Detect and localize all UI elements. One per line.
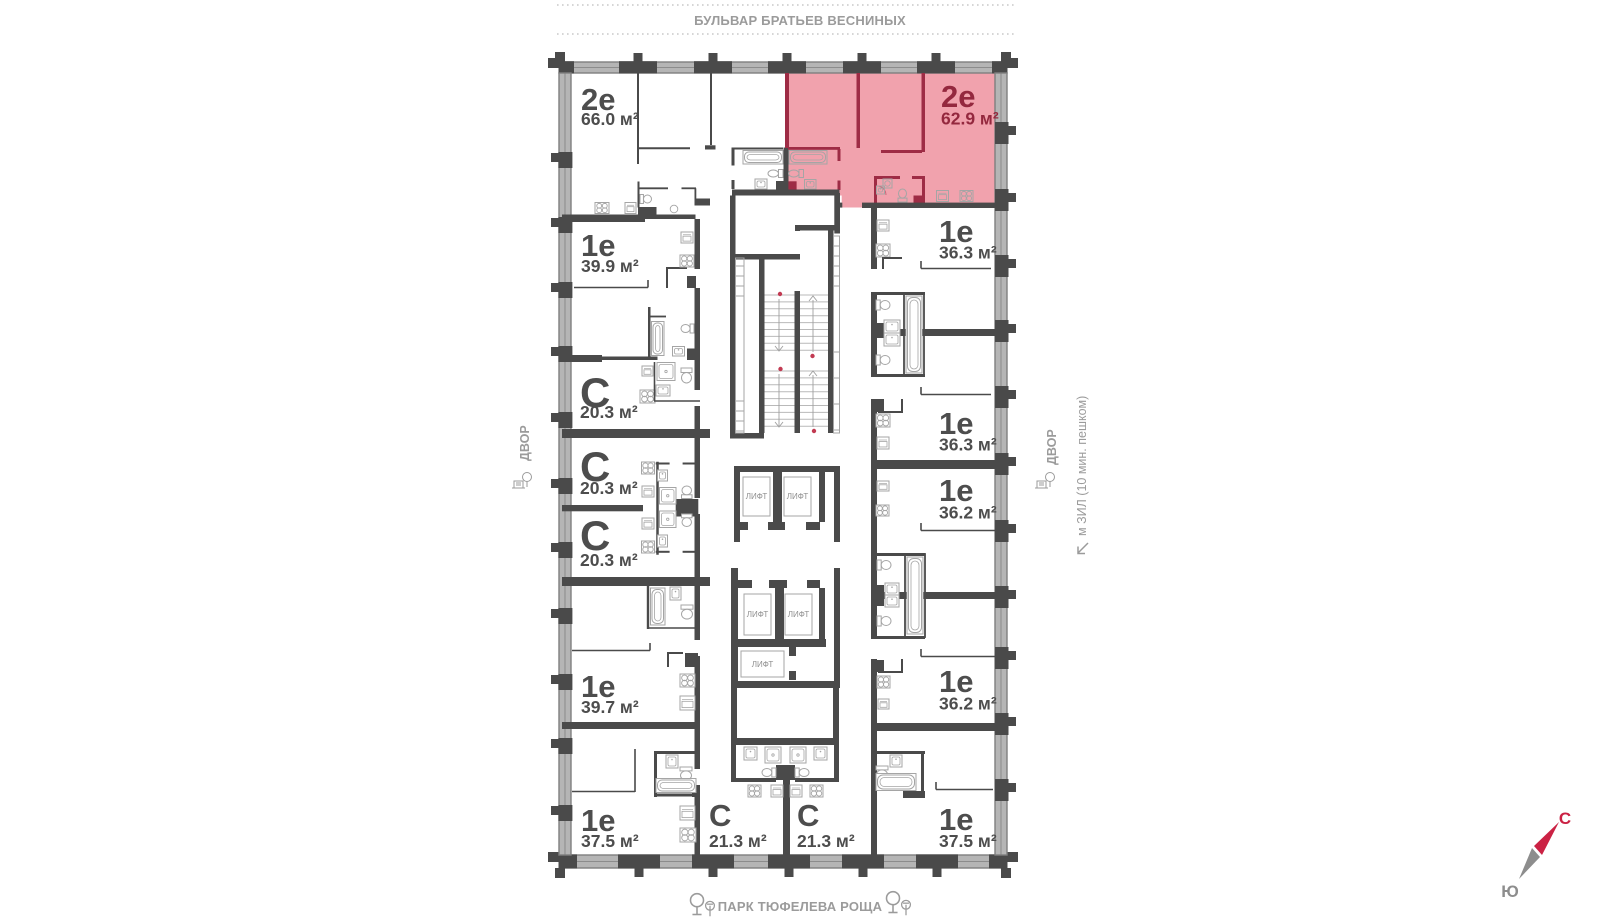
svg-text:ДВОР: ДВОР <box>1045 429 1059 465</box>
svg-text:С: С <box>1559 809 1571 828</box>
svg-text:21.3 м²: 21.3 м² <box>797 831 855 851</box>
svg-text:Ю: Ю <box>1501 882 1519 901</box>
svg-text:20.3 м²: 20.3 м² <box>580 402 638 422</box>
svg-text:21.3 м²: 21.3 м² <box>709 831 767 851</box>
svg-text:С: С <box>709 798 731 833</box>
svg-text:ЛИФТ: ЛИФТ <box>788 610 810 619</box>
svg-text:ДВОР: ДВОР <box>518 425 532 461</box>
svg-text:62.9 м²: 62.9 м² <box>941 109 999 129</box>
svg-text:36.3 м²: 36.3 м² <box>939 243 997 263</box>
svg-text:ЛИФТ: ЛИФТ <box>752 660 774 669</box>
svg-text:36.3 м²: 36.3 м² <box>939 435 997 455</box>
svg-text:ЛИФТ: ЛИФТ <box>746 492 768 501</box>
svg-text:БУЛЬВАР БРАТЬЕВ ВЕСНИНЫХ: БУЛЬВАР БРАТЬЕВ ВЕСНИНЫХ <box>694 13 906 28</box>
svg-text:39.7 м²: 39.7 м² <box>581 697 639 717</box>
svg-text:39.9 м²: 39.9 м² <box>581 256 639 276</box>
svg-text:ЛИФТ: ЛИФТ <box>787 492 809 501</box>
svg-text:С: С <box>797 798 819 833</box>
svg-text:36.2 м²: 36.2 м² <box>939 694 997 714</box>
svg-text:66.0 м²: 66.0 м² <box>581 109 639 129</box>
svg-text:36.2 м²: 36.2 м² <box>939 503 997 523</box>
svg-text:37.5 м²: 37.5 м² <box>939 831 997 851</box>
svg-text:м ЗИЛ (10 мин. пешком): м ЗИЛ (10 мин. пешком) <box>1075 396 1089 536</box>
svg-text:37.5 м²: 37.5 м² <box>581 831 639 851</box>
svg-text:ЛИФТ: ЛИФТ <box>747 610 769 619</box>
svg-text:20.3 м²: 20.3 м² <box>580 478 638 498</box>
svg-text:ПАРК ТЮФЕЛЕВА РОЩА: ПАРК ТЮФЕЛЕВА РОЩА <box>718 899 883 914</box>
svg-text:20.3 м²: 20.3 м² <box>580 550 638 570</box>
